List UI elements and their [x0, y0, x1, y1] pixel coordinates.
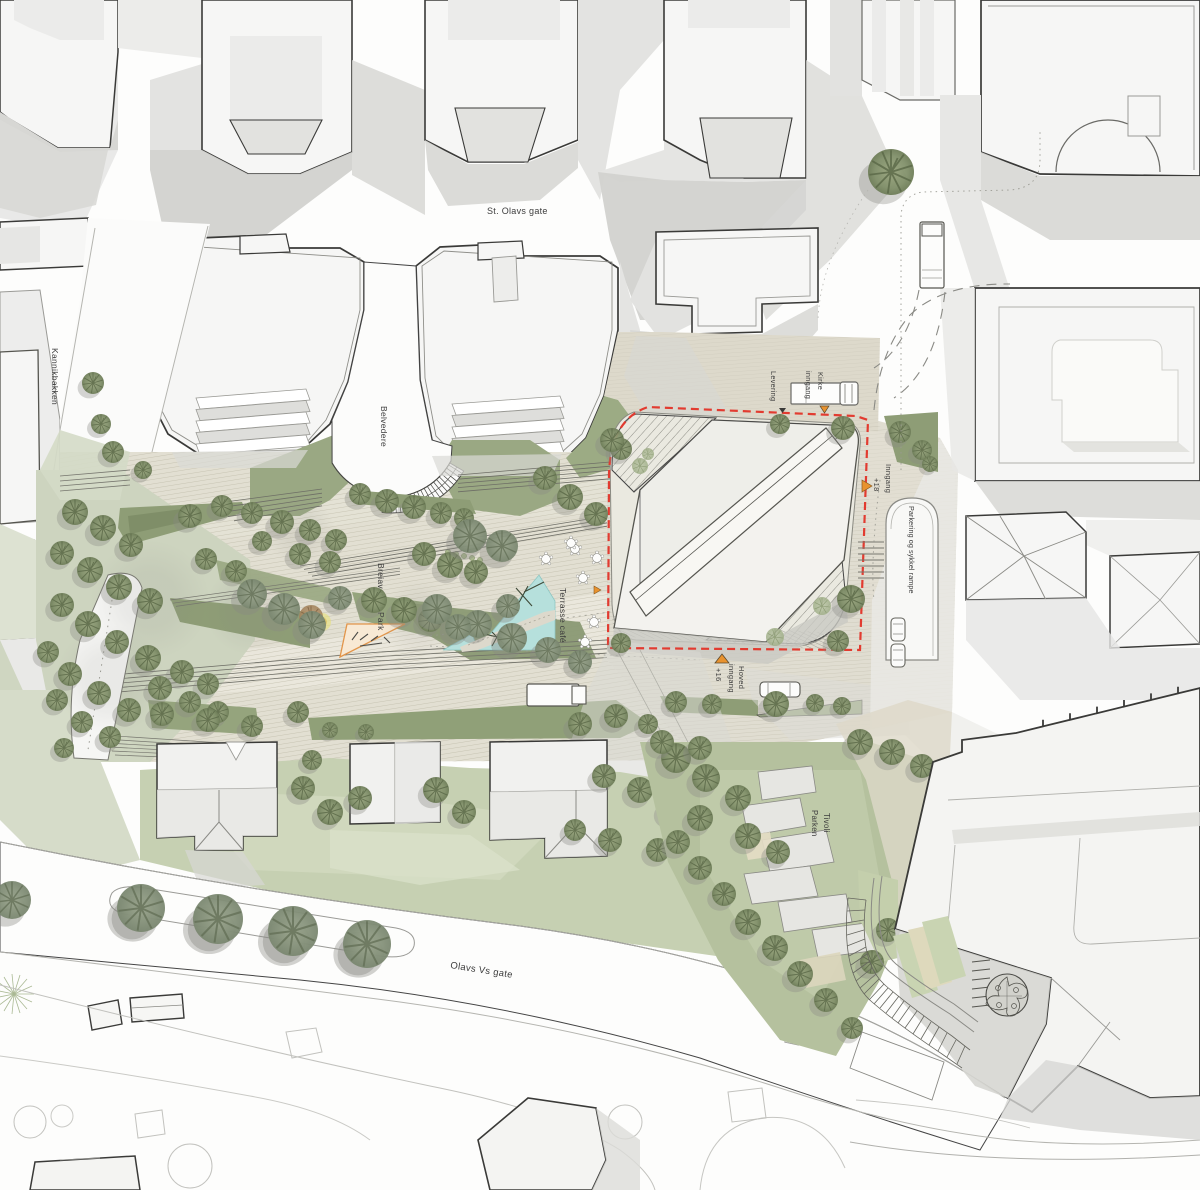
- svg-text:Parkering og sykkel rampe: Parkering og sykkel rampe: [907, 506, 916, 594]
- svg-text:inngang: inngang: [804, 371, 813, 399]
- svg-text:Terrasse café: Terrasse café: [558, 588, 568, 643]
- svg-text:Kirke: Kirke: [816, 372, 825, 390]
- svg-text:Inngang: Inngang: [884, 464, 893, 493]
- svg-text:Parken: Parken: [810, 810, 819, 837]
- svg-text:Hoved: Hoved: [737, 666, 746, 689]
- svg-text:Kannikbakken: Kannikbakken: [50, 348, 60, 405]
- svg-text:Levering: Levering: [769, 371, 778, 401]
- svg-text:inngang: inngang: [727, 664, 736, 693]
- svg-text:Belvedere: Belvedere: [379, 406, 389, 447]
- svg-text:Tivoli: Tivoli: [822, 813, 831, 833]
- svg-text:St. Olavs gate: St. Olavs gate: [487, 206, 548, 216]
- svg-text:+16: +16: [714, 668, 723, 682]
